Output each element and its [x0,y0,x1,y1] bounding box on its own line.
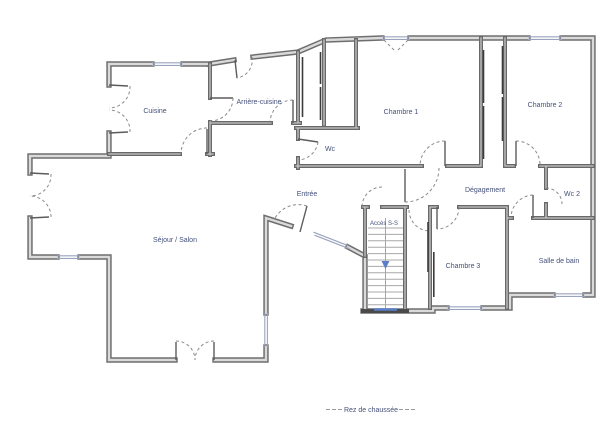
interior-walls [109,38,593,311]
floorplan-canvas: Cuisine Arrière-cuisine Chambre 1 Chambr… [0,0,600,431]
room-label-sejour-salon: Séjour / Salon [153,237,197,244]
room-label-wc: Wc [325,146,336,153]
wc2-door-arc [546,188,562,204]
room-label-chambre-3: Chambre 3 [446,263,481,270]
floor-legend: Rez de chaussée [326,407,416,414]
kitchen-west-casement-arcs [109,86,130,132]
bedroom1-window-casement [384,40,408,52]
closet-doors [303,46,503,297]
front-door-leaf [300,206,307,232]
front-door-arc [274,205,307,220]
living-east-window [265,313,268,347]
bay-west-casement-arcs [30,174,51,217]
room-label-entree: Entrée [297,191,318,198]
bedroom3-bottom-window [447,307,483,310]
kitchen-backkitchen-door-arc [210,98,233,121]
kitchen-south-door-arc [181,128,207,154]
floor-legend-label: Rez de chaussée [344,407,398,414]
room-label-chambre-1: Chambre 1 [384,109,419,116]
backkitchen-exterior-door-arc [237,57,252,78]
bedroom1-door-arc [420,141,445,166]
kitchen-west-casement-leaves [109,85,128,133]
wc-door-arc [298,142,318,160]
backkitchen-exterior-door-leaf [235,60,237,78]
kitchen-top-window [152,63,183,66]
bathroom-door-arc [511,195,533,218]
stair-direction-arrow [382,261,390,269]
bedroom3-door-arc [437,207,459,229]
floor-plan-svg: Cuisine Arrière-cuisine Chambre 1 Chambr… [0,0,600,431]
bathroom-bottom-window [553,294,585,297]
hallway-west-door-arc [405,168,439,202]
room-label-chambre-2: Chambre 2 [528,102,563,109]
room-label-cuisine: Cuisine [143,108,166,115]
living-french-door-arcs [176,341,214,360]
stair-closet-door-arc [409,210,430,231]
bedroom1-top-window [382,37,410,40]
exterior-walls [30,38,593,360]
stair-door-arc [362,187,382,207]
entry-sidelight-window [314,232,350,249]
room-label-salle-de-bain: Salle de bain [539,258,580,265]
bedroom2-door-arc [516,141,540,166]
wc-door-leaf [298,139,318,142]
room-label-wc-2: Wc 2 [564,191,580,198]
room-label-arriere-cuisine: Arrière-cuisine [236,99,281,106]
bay-bottom-window [57,256,80,259]
living-french-door-leaves [176,342,214,360]
staircase [368,218,403,310]
bedroom2-top-window [528,37,562,40]
room-label-acces-ss: Accès S-S [370,221,398,227]
room-label-degagement: Dégagement [465,187,505,194]
